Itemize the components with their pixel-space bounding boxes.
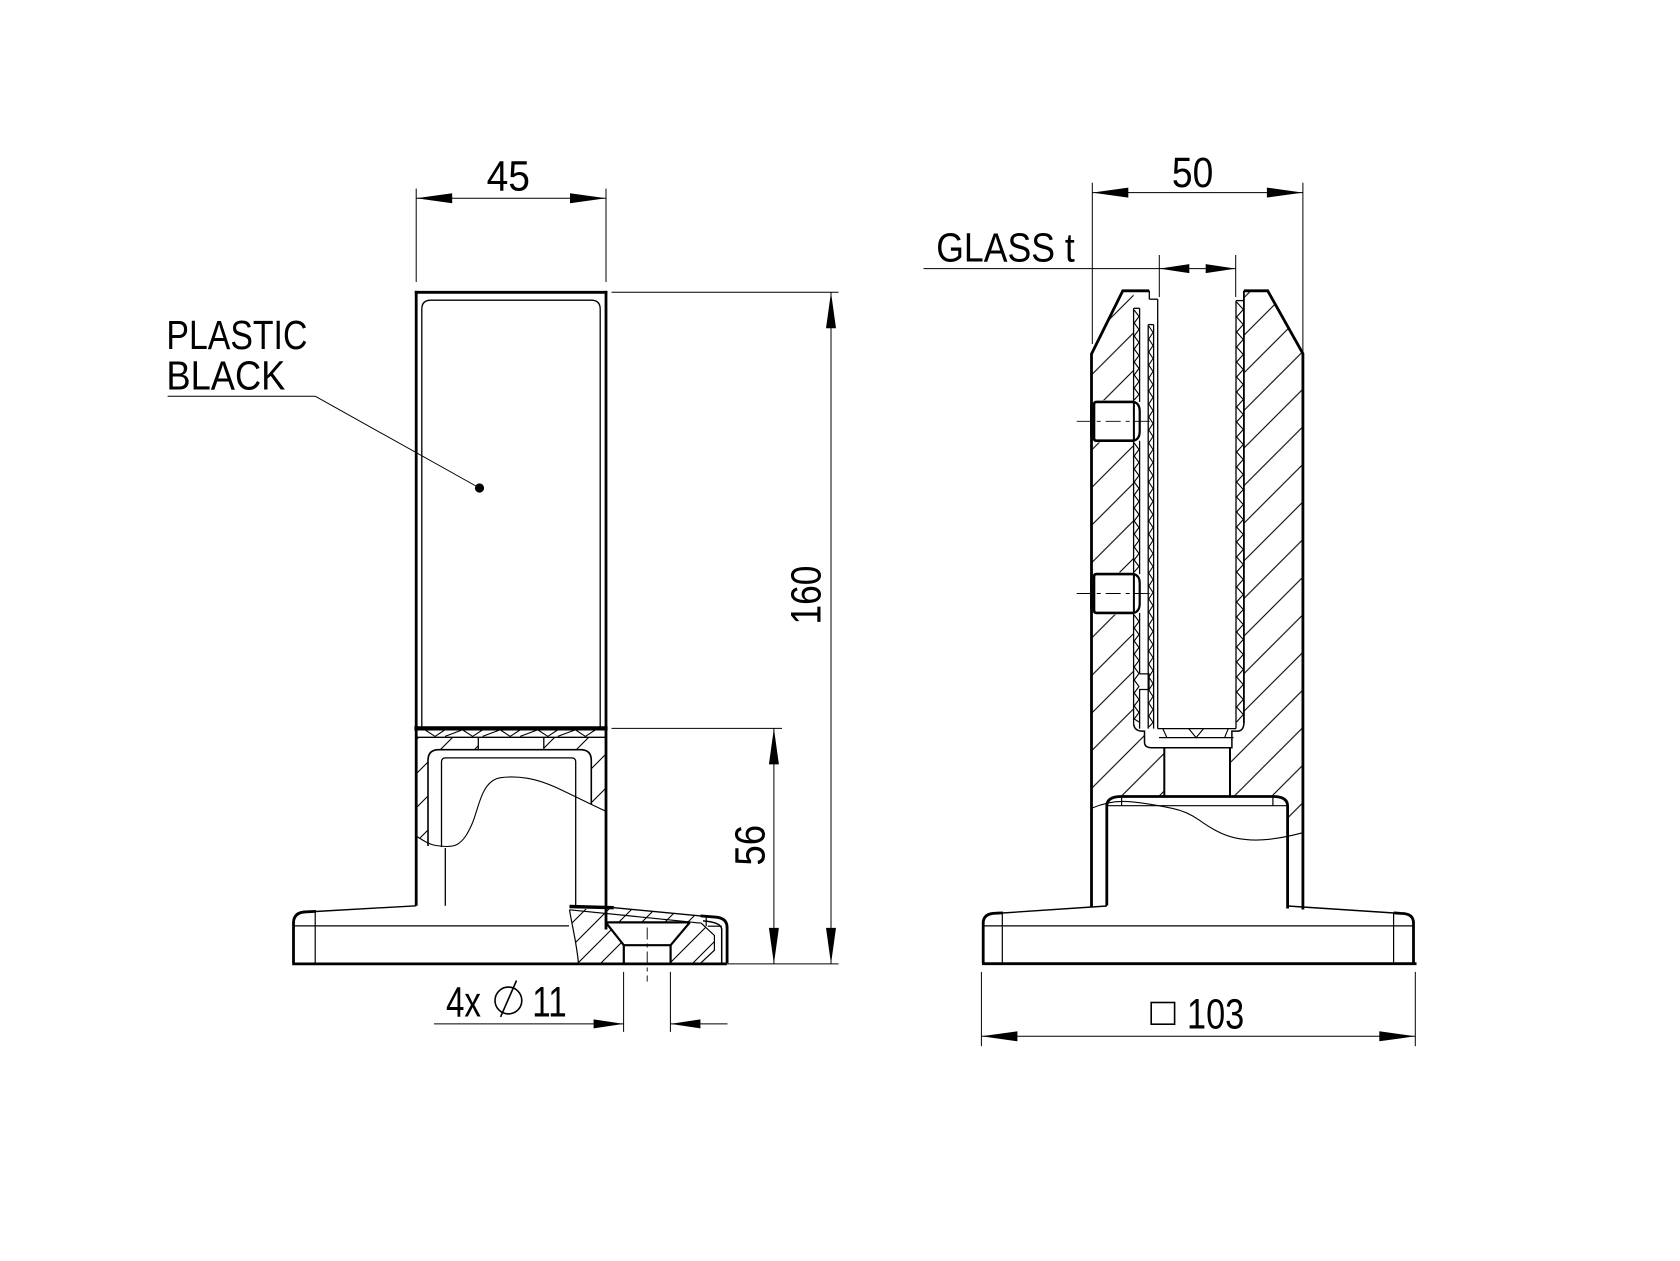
svg-text:4x: 4x [446,979,481,1027]
svg-text:PLASTIC: PLASTIC [166,312,307,358]
svg-text:GLASS t: GLASS t [936,225,1075,271]
svg-text:160: 160 [783,566,831,625]
svg-text:11: 11 [532,979,566,1027]
svg-text:56: 56 [727,825,775,866]
svg-text:BLACK: BLACK [166,353,285,399]
svg-text:45: 45 [487,153,530,201]
svg-text:103: 103 [1187,990,1244,1038]
svg-text:50: 50 [1172,149,1213,197]
